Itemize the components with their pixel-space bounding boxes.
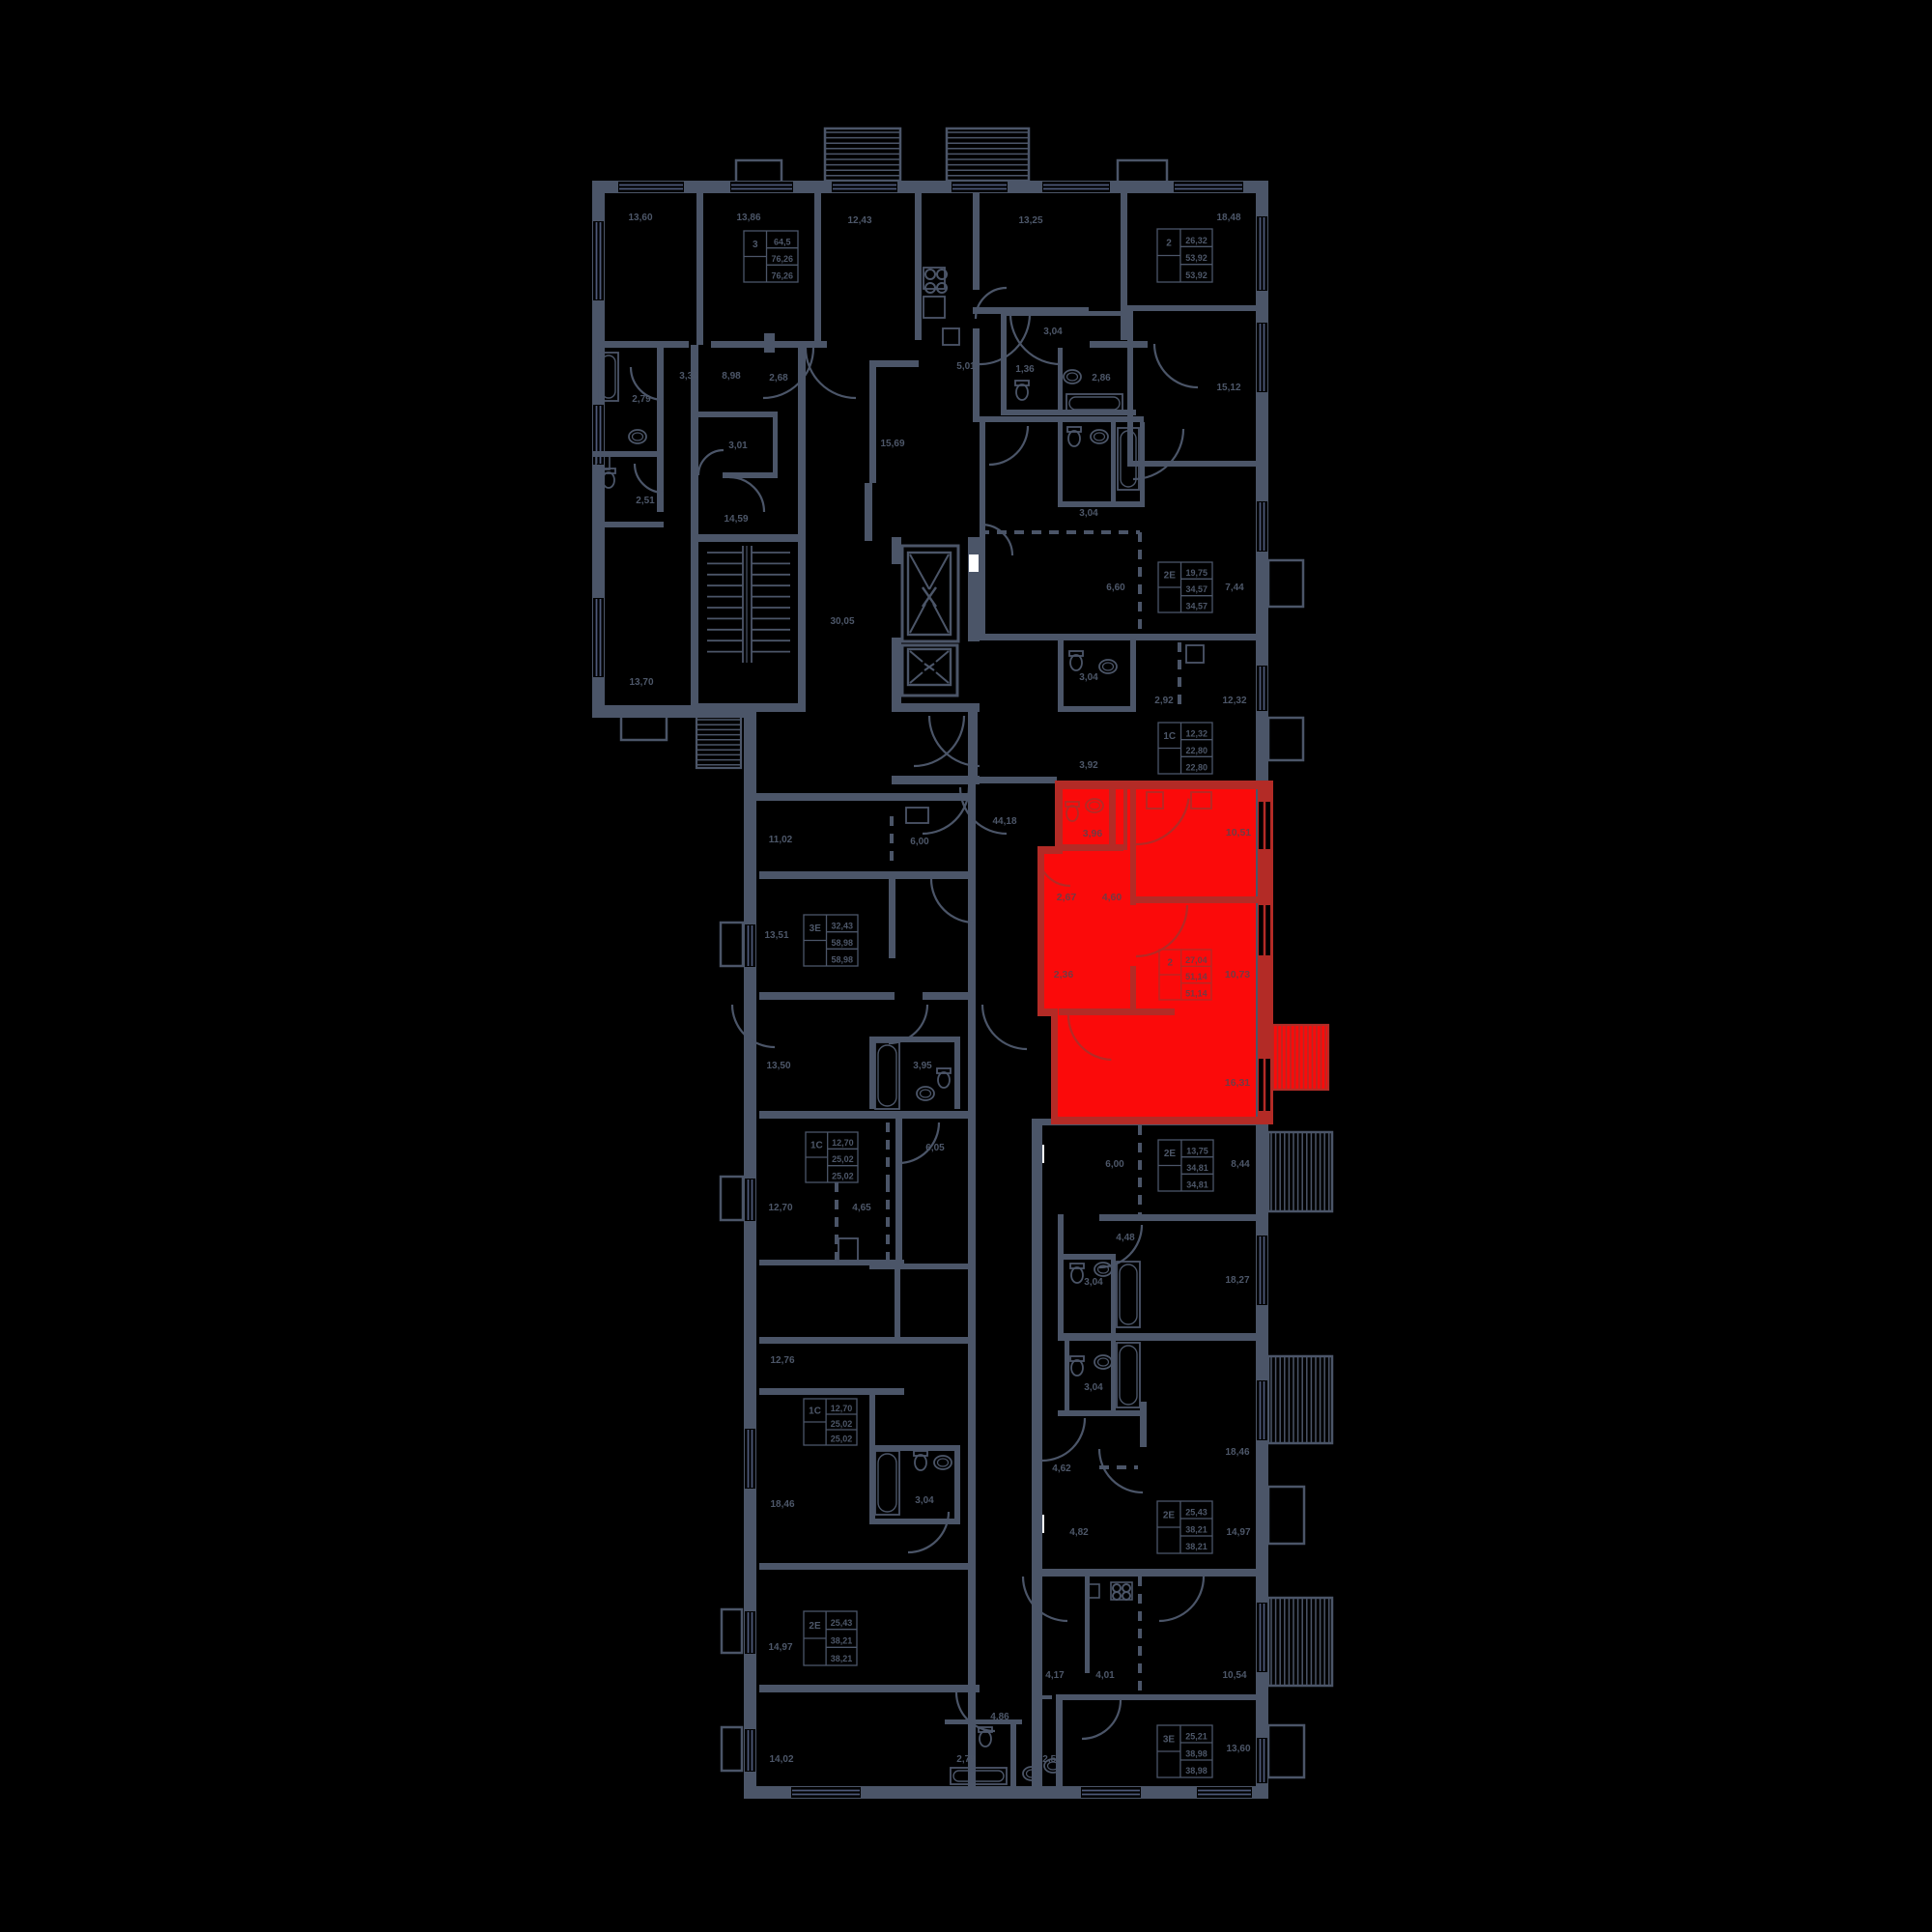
svg-text:3,04: 3,04 (1084, 1382, 1103, 1393)
svg-text:6,05: 6,05 (925, 1143, 945, 1153)
svg-text:53,92: 53,92 (1185, 270, 1207, 280)
svg-text:22,80: 22,80 (1185, 746, 1207, 755)
svg-text:2,36: 2,36 (1054, 969, 1074, 980)
svg-text:3,34: 3,34 (679, 371, 698, 382)
svg-text:27,04: 27,04 (1185, 955, 1207, 965)
svg-text:15,12: 15,12 (1216, 383, 1240, 393)
svg-text:14,97: 14,97 (768, 1642, 792, 1653)
svg-text:8,44: 8,44 (1231, 1159, 1250, 1170)
svg-text:3,04: 3,04 (915, 1495, 934, 1506)
svg-text:1С: 1С (1163, 731, 1176, 742)
svg-text:2,79: 2,79 (632, 394, 651, 405)
svg-text:13,70: 13,70 (629, 677, 653, 688)
svg-text:38,98: 38,98 (1185, 1748, 1207, 1758)
svg-text:2,67: 2,67 (1057, 892, 1077, 903)
svg-text:51,14: 51,14 (1185, 972, 1207, 981)
svg-text:34,81: 34,81 (1186, 1179, 1208, 1189)
svg-text:3,04: 3,04 (1084, 1277, 1103, 1288)
svg-text:25,21: 25,21 (1185, 1732, 1207, 1742)
svg-text:10,73: 10,73 (1225, 969, 1250, 980)
svg-text:25,43: 25,43 (831, 1618, 853, 1628)
svg-text:3,96: 3,96 (1083, 828, 1103, 839)
svg-text:18,46: 18,46 (1225, 1447, 1249, 1458)
svg-text:4,86: 4,86 (990, 1712, 1009, 1722)
svg-text:51,14: 51,14 (1185, 988, 1207, 998)
svg-text:2Е: 2Е (1164, 571, 1177, 582)
svg-text:6,00: 6,00 (1105, 1159, 1124, 1170)
svg-text:14,02: 14,02 (769, 1754, 793, 1765)
svg-text:8,98: 8,98 (722, 371, 741, 382)
svg-text:2Е: 2Е (1163, 1510, 1176, 1520)
svg-text:2: 2 (1168, 958, 1174, 969)
svg-text:5,01: 5,01 (956, 361, 976, 372)
svg-text:25,02: 25,02 (832, 1171, 854, 1180)
svg-text:34,81: 34,81 (1186, 1163, 1208, 1173)
svg-text:14,59: 14,59 (724, 514, 748, 525)
svg-text:1С: 1С (809, 1406, 821, 1416)
svg-text:3,95: 3,95 (913, 1061, 932, 1071)
svg-text:3Е: 3Е (810, 923, 822, 934)
svg-text:58,98: 58,98 (831, 938, 853, 948)
svg-text:19,75: 19,75 (1185, 568, 1207, 578)
svg-text:34,57: 34,57 (1185, 584, 1207, 594)
svg-text:10,54: 10,54 (1222, 1670, 1246, 1681)
svg-text:38,21: 38,21 (1185, 1542, 1207, 1551)
svg-text:25,43: 25,43 (1185, 1508, 1207, 1518)
svg-text:13,60: 13,60 (1226, 1744, 1250, 1754)
svg-text:13,50: 13,50 (766, 1061, 790, 1071)
svg-text:38,21: 38,21 (1185, 1524, 1207, 1534)
svg-text:34,57: 34,57 (1185, 601, 1207, 611)
svg-text:4,48: 4,48 (1116, 1233, 1135, 1243)
svg-text:7,44: 7,44 (1225, 582, 1244, 593)
svg-text:30,05: 30,05 (830, 616, 854, 627)
svg-text:13,25: 13,25 (1018, 215, 1042, 226)
svg-text:2,51: 2,51 (1042, 1754, 1062, 1765)
svg-text:76,26: 76,26 (771, 270, 793, 280)
svg-text:12,32: 12,32 (1185, 728, 1207, 738)
svg-text:4,01: 4,01 (1095, 1670, 1115, 1681)
svg-text:1,36: 1,36 (1015, 364, 1035, 375)
svg-text:3,04: 3,04 (1079, 672, 1098, 683)
svg-text:12,70: 12,70 (832, 1138, 854, 1148)
svg-text:12,43: 12,43 (847, 215, 871, 226)
svg-text:3Е: 3Е (1163, 1734, 1176, 1745)
svg-text:25,02: 25,02 (832, 1154, 854, 1164)
svg-text:64,5: 64,5 (774, 237, 791, 246)
svg-text:18,46: 18,46 (770, 1499, 794, 1510)
svg-text:3,01: 3,01 (728, 440, 748, 451)
svg-text:13,86: 13,86 (736, 213, 760, 223)
svg-text:53,92: 53,92 (1185, 253, 1207, 263)
svg-text:25,02: 25,02 (831, 1419, 853, 1429)
svg-text:16,31: 16,31 (1225, 1077, 1250, 1089)
svg-text:6,00: 6,00 (910, 837, 929, 847)
svg-text:3,04: 3,04 (1079, 508, 1098, 519)
svg-text:2,92: 2,92 (1154, 696, 1174, 706)
svg-text:26,32: 26,32 (1185, 236, 1207, 245)
svg-text:2,86: 2,86 (1092, 373, 1111, 384)
svg-text:6,60: 6,60 (1106, 582, 1125, 593)
svg-text:38,21: 38,21 (831, 1654, 853, 1663)
svg-text:10,51: 10,51 (1226, 827, 1251, 838)
svg-text:12,70: 12,70 (831, 1404, 853, 1413)
svg-text:2,79: 2,79 (956, 1754, 976, 1765)
svg-text:2Е: 2Е (809, 1621, 821, 1632)
svg-text:3,92: 3,92 (1079, 760, 1098, 771)
svg-text:14,97: 14,97 (1226, 1527, 1250, 1538)
svg-text:2,68: 2,68 (769, 373, 788, 384)
svg-text:13,60: 13,60 (628, 213, 652, 223)
svg-text:4,62: 4,62 (1052, 1463, 1071, 1474)
svg-text:4,65: 4,65 (852, 1203, 871, 1213)
svg-text:32,43: 32,43 (831, 921, 853, 930)
svg-text:15,69: 15,69 (880, 439, 904, 449)
svg-text:2: 2 (1166, 239, 1172, 249)
svg-text:12,76: 12,76 (770, 1355, 794, 1366)
svg-text:44,18: 44,18 (992, 816, 1016, 827)
svg-text:25,02: 25,02 (831, 1435, 853, 1444)
svg-text:76,26: 76,26 (771, 254, 793, 264)
svg-text:3,04: 3,04 (1043, 327, 1063, 337)
svg-text:18,48: 18,48 (1216, 213, 1240, 223)
svg-text:1С: 1С (810, 1141, 823, 1151)
svg-text:13,51: 13,51 (764, 930, 788, 941)
svg-text:58,98: 58,98 (831, 954, 853, 964)
svg-text:22,80: 22,80 (1185, 762, 1207, 772)
svg-text:3: 3 (753, 240, 758, 250)
svg-text:4,82: 4,82 (1069, 1527, 1089, 1538)
svg-text:38,21: 38,21 (831, 1636, 853, 1646)
svg-text:13,75: 13,75 (1186, 1146, 1208, 1155)
svg-text:11,02: 11,02 (769, 835, 793, 845)
svg-text:12,70: 12,70 (768, 1203, 792, 1213)
svg-text:12,32: 12,32 (1222, 696, 1246, 706)
svg-text:18,27: 18,27 (1225, 1275, 1249, 1286)
svg-text:4,17: 4,17 (1045, 1670, 1065, 1681)
svg-text:38,98: 38,98 (1185, 1766, 1207, 1776)
svg-text:4,60: 4,60 (1102, 892, 1122, 903)
svg-text:2,51: 2,51 (636, 496, 655, 506)
svg-text:2Е: 2Е (1164, 1149, 1177, 1159)
